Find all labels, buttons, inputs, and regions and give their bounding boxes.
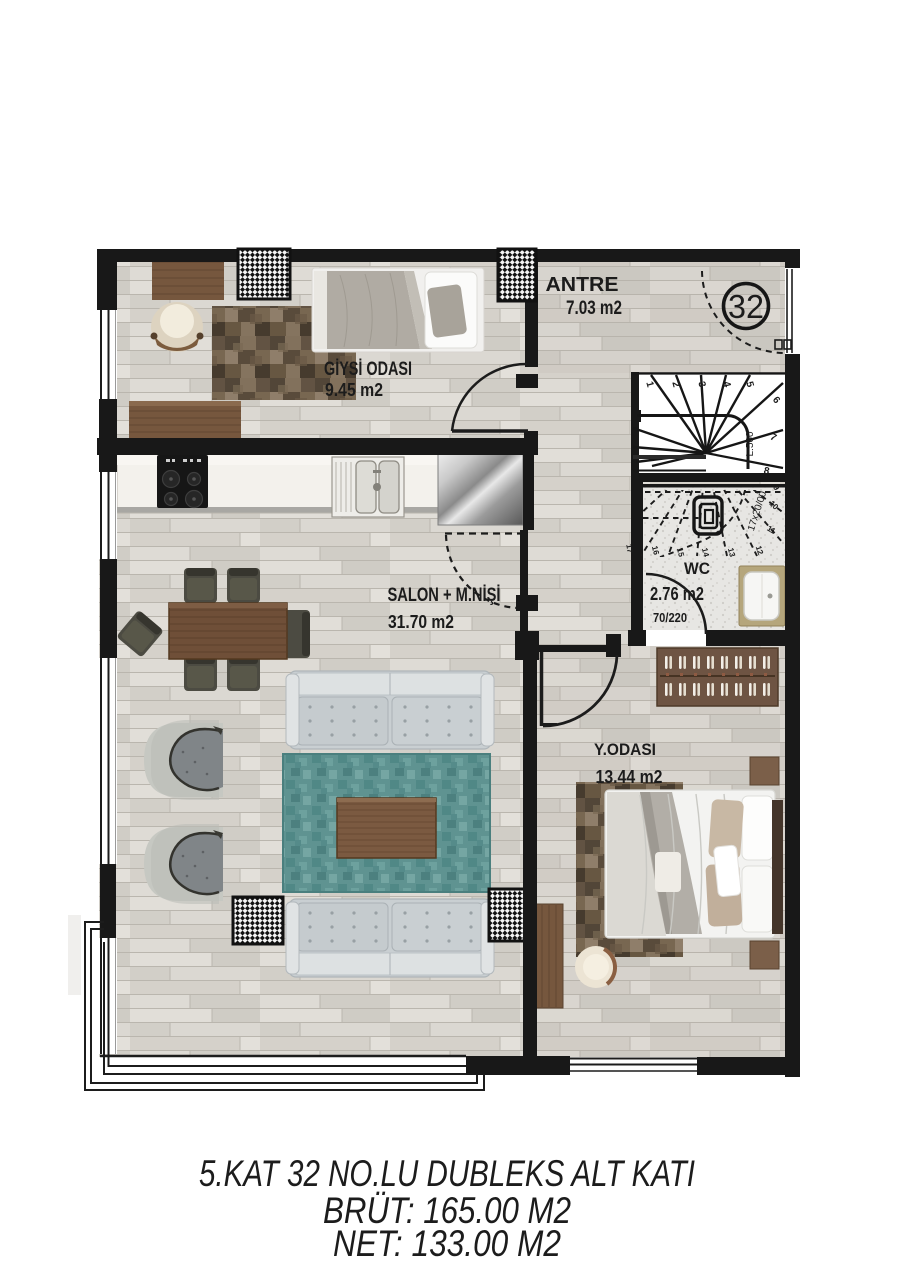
svg-text:L:560: L:560	[745, 431, 756, 456]
svg-text:Y.ODASI: Y.ODASI	[594, 740, 656, 759]
svg-text:7.03 m2: 7.03 m2	[566, 298, 622, 319]
svg-text:NET: 133.00 M2: NET: 133.00 M2	[333, 1223, 561, 1264]
svg-text:GİYSİ ODASI: GİYSİ ODASI	[324, 359, 412, 380]
svg-text:31.70 m2: 31.70 m2	[388, 611, 454, 632]
svg-text:13.44 m2: 13.44 m2	[596, 767, 663, 787]
svg-text:ANTRE: ANTRE	[546, 274, 619, 296]
svg-text:70/220: 70/220	[653, 610, 687, 625]
svg-text:5.KAT 32 NO.LU DUBLEKS ALT KAT: 5.KAT 32 NO.LU DUBLEKS ALT KATI	[199, 1153, 695, 1194]
svg-text:2.76 m2: 2.76 m2	[650, 584, 704, 604]
svg-text:SALON + M.NİŞİ: SALON + M.NİŞİ	[388, 585, 501, 606]
svg-text:32: 32	[728, 288, 764, 325]
svg-text:WC: WC	[684, 559, 710, 578]
svg-text:9.45 m2: 9.45 m2	[325, 380, 383, 400]
